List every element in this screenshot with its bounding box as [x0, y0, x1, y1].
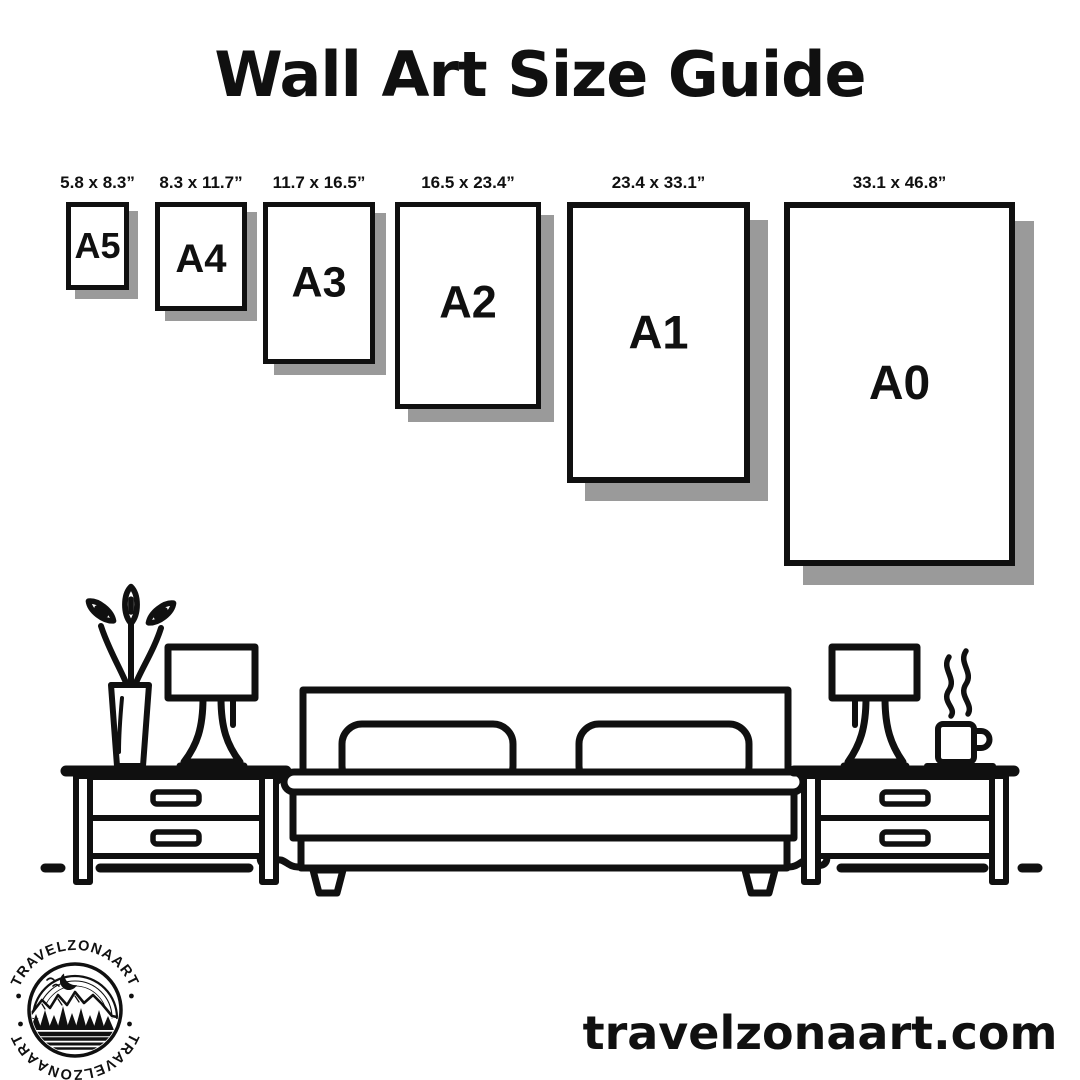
plant-stem	[101, 626, 127, 685]
logo-dot	[18, 1022, 23, 1027]
paper-dimensions-label: 8.3 x 11.7”	[159, 170, 242, 196]
logo-dot	[129, 994, 134, 999]
steam	[964, 651, 970, 714]
paper-dimensions-label: 33.1 x 46.8”	[853, 170, 947, 196]
paper-size-a5: 5.8 x 8.3” A5	[66, 170, 129, 290]
brand-logo: TRAVELZONAART TRAVELZONAART	[0, 918, 150, 1080]
paper-size-a3: 11.7 x 16.5” A3	[263, 170, 375, 364]
paper-size-name: A4	[160, 239, 242, 279]
coffee-cup-icon	[927, 651, 993, 766]
paper-size-name: A2	[400, 279, 536, 324]
paper-sheet: A1	[567, 202, 750, 483]
paper-sheet: A2	[395, 202, 541, 409]
paper-size-name: A3	[268, 262, 370, 305]
paper-dimensions-label: 16.5 x 23.4”	[421, 170, 515, 196]
steam	[947, 657, 953, 716]
paper-sheet: A3	[263, 202, 375, 364]
plant-stem	[135, 628, 161, 685]
page-title: Wall Art Size Guide	[0, 38, 1080, 111]
paper-size-name: A1	[573, 308, 744, 355]
potted-plant-icon	[85, 587, 177, 766]
paper-sheet: A5	[66, 202, 129, 290]
paper-dimensions-label: 23.4 x 33.1”	[612, 170, 706, 196]
logo-scene	[28, 974, 122, 1049]
bed-leg-right	[745, 870, 775, 893]
lamp-shade	[168, 647, 255, 698]
paper-size-name: A5	[71, 228, 124, 264]
paper-size-a2: 16.5 x 23.4” A2	[395, 170, 541, 409]
bed-base	[301, 838, 787, 868]
bed-leg-left	[313, 870, 343, 893]
table-lamp-right-icon	[832, 647, 917, 766]
paper-dimensions-label: 11.7 x 16.5”	[273, 170, 366, 196]
paper-size-a1: 23.4 x 33.1” A1	[567, 170, 750, 483]
paper-size-a4: 8.3 x 11.7” A4	[155, 170, 247, 311]
cup-body	[938, 724, 974, 762]
double-bed-icon	[260, 690, 827, 893]
leaf	[125, 587, 137, 624]
logo-dot	[16, 994, 21, 999]
paper-sheet: A4	[155, 202, 247, 311]
lamp-shade	[832, 647, 917, 698]
paper-sheet: A0	[784, 202, 1015, 566]
bedroom-illustration	[0, 578, 1080, 908]
leaf	[85, 597, 117, 625]
leaf	[145, 599, 177, 627]
table-lamp-left-icon	[168, 647, 255, 766]
size-guide-infographic: Wall Art Size Guide 5.8 x 8.3” A5 8.3 x …	[0, 0, 1080, 1080]
website-url: travelzonaart.com	[560, 1006, 1080, 1060]
logo-dot	[127, 1022, 132, 1027]
vase	[111, 685, 149, 766]
blanket	[293, 792, 794, 838]
paper-dimensions-label: 5.8 x 8.3”	[60, 170, 135, 196]
paper-size-name: A0	[790, 360, 1009, 408]
paper-size-a0: 33.1 x 46.8” A0	[784, 170, 1015, 566]
